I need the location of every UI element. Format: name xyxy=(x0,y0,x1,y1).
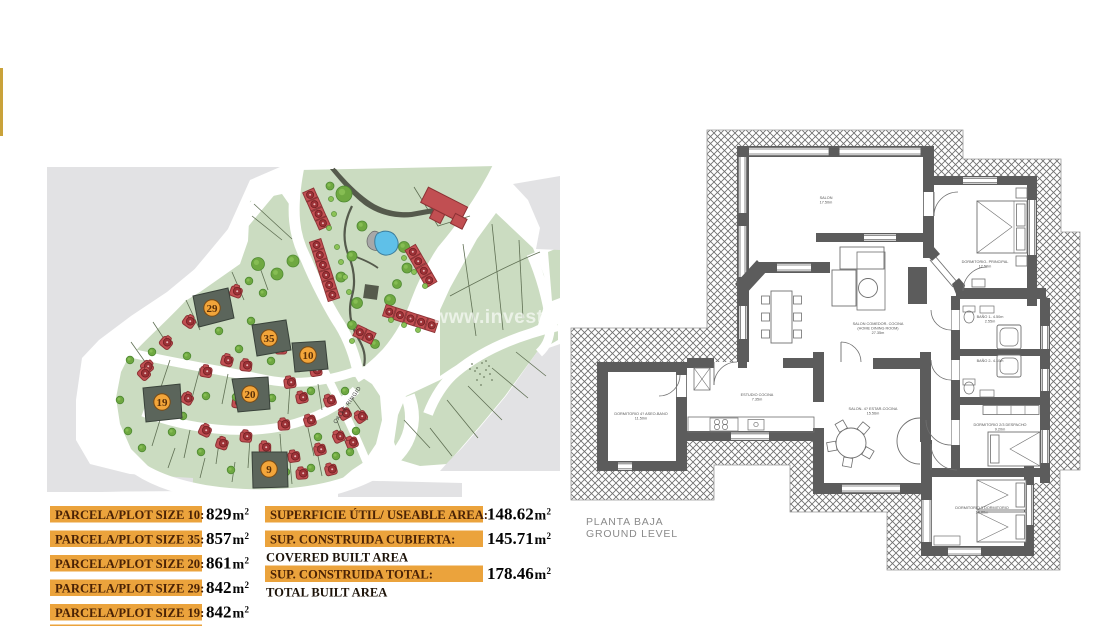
svg-text:SUPERFICIE ÚTIL/ USEABLE AREA:: SUPERFICIE ÚTIL/ USEABLE AREA: xyxy=(270,508,488,522)
svg-text:PARCELA/PLOT SIZE 19:: PARCELA/PLOT SIZE 19: xyxy=(55,606,204,620)
svg-text:m: m xyxy=(535,509,547,524)
svg-text:PARCELA/PLOT SIZE 35:: PARCELA/PLOT SIZE 35: xyxy=(55,532,204,546)
svg-text:10: 10 xyxy=(303,350,315,362)
svg-text:7.35m: 7.35m xyxy=(752,397,763,401)
svg-text:SALON COMEDOR- COCINA: SALON COMEDOR- COCINA xyxy=(853,322,904,326)
svg-text:2: 2 xyxy=(547,531,552,541)
svg-text:SUP. CONSTRUIDA TOTAL:: SUP. CONSTRUIDA TOTAL: xyxy=(270,567,433,581)
svg-text:BAÑO 2- 4.10m: BAÑO 2- 4.10m xyxy=(977,358,1004,363)
svg-text:178.46: 178.46 xyxy=(487,564,534,583)
svg-text:9: 9 xyxy=(266,464,272,476)
svg-text:2: 2 xyxy=(245,531,250,541)
svg-text:2: 2 xyxy=(245,580,250,590)
svg-text:2: 2 xyxy=(245,556,250,566)
svg-text:GROUND LEVEL: GROUND LEVEL xyxy=(586,528,678,540)
svg-text:SALON: SALON xyxy=(820,196,833,200)
svg-text:ESTUDIO COCINA: ESTUDIO COCINA xyxy=(741,393,774,397)
svg-text:TOTAL BUILT AREA: TOTAL BUILT AREA xyxy=(266,586,387,600)
svg-text:29: 29 xyxy=(207,303,219,315)
svg-text:(HOME DINING ROOM): (HOME DINING ROOM) xyxy=(857,326,899,330)
svg-text:27.35m: 27.35m xyxy=(872,331,885,335)
svg-text:2: 2 xyxy=(245,605,250,615)
svg-text:m: m xyxy=(535,568,547,583)
svg-text:PARCELA/PLOT SIZE 20:: PARCELA/PLOT SIZE 20: xyxy=(55,557,204,571)
svg-text:857: 857 xyxy=(206,529,232,548)
svg-text:19: 19 xyxy=(157,397,169,409)
svg-text:15.56m: 15.56m xyxy=(867,411,880,415)
svg-text:PARCELA/PLOT SIZE 10:: PARCELA/PLOT SIZE 10: xyxy=(55,508,204,522)
svg-text:2: 2 xyxy=(245,507,250,517)
svg-text:829: 829 xyxy=(206,505,232,524)
svg-text:PARCELA/PLOT SIZE 29:: PARCELA/PLOT SIZE 29: xyxy=(55,581,204,595)
svg-text:m: m xyxy=(233,607,245,622)
svg-text:10.80m: 10.80m xyxy=(976,510,989,514)
svg-text:2.55m: 2.55m xyxy=(985,319,996,323)
svg-text:842: 842 xyxy=(206,578,232,597)
svg-text:9.20m: 9.20m xyxy=(995,427,1006,431)
svg-text:17.50m: 17.50m xyxy=(820,200,833,204)
svg-text:861: 861 xyxy=(206,554,232,573)
svg-text:35: 35 xyxy=(264,333,276,345)
svg-text:2: 2 xyxy=(547,566,552,576)
svg-text:11.50m: 11.50m xyxy=(635,416,647,420)
svg-text:PLANTA BAJA: PLANTA BAJA xyxy=(586,516,663,528)
svg-text:20: 20 xyxy=(245,389,257,401)
svg-text:DORMITORIO 3 DORMITORIO: DORMITORIO 3 DORMITORIO xyxy=(955,506,1008,510)
svg-text:SALON- 4? ESTAR-COCINA: SALON- 4? ESTAR-COCINA xyxy=(849,407,898,411)
svg-text:145.71: 145.71 xyxy=(487,529,534,548)
svg-text:BAÑO 1- 4.50m: BAÑO 1- 4.50m xyxy=(977,314,1004,319)
svg-text:COVERED BUILT AREA: COVERED BUILT AREA xyxy=(266,551,408,565)
svg-text:12.50m: 12.50m xyxy=(979,264,992,268)
svg-text:148.62: 148.62 xyxy=(487,505,534,524)
svg-text:m: m xyxy=(233,582,245,597)
svg-text:m: m xyxy=(233,558,245,573)
svg-text:www.investfo: www.investfo xyxy=(432,306,563,328)
svg-text:DORMITORIO 2/3 DESPACHO: DORMITORIO 2/3 DESPACHO xyxy=(973,423,1026,427)
svg-text:DORMITORIO- PRINCIPAL: DORMITORIO- PRINCIPAL xyxy=(962,260,1009,264)
svg-text:m: m xyxy=(233,509,245,524)
svg-text:842: 842 xyxy=(206,603,232,622)
svg-text:m: m xyxy=(233,533,245,548)
svg-text:m: m xyxy=(535,533,547,548)
svg-text:SUP. CONSTRUIDA CUBIERTA:: SUP. CONSTRUIDA CUBIERTA: xyxy=(270,532,455,546)
svg-text:2: 2 xyxy=(547,507,552,517)
svg-text:DORMITORIO 4? ASEO-BANO: DORMITORIO 4? ASEO-BANO xyxy=(614,412,667,416)
